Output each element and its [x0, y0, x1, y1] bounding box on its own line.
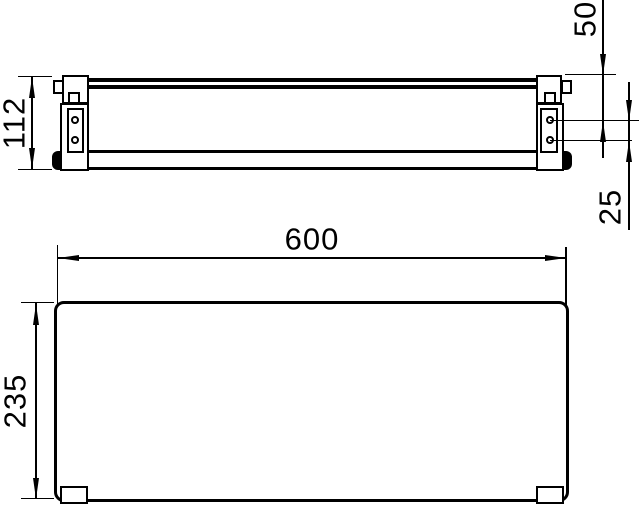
- dim235-arrow-down: [33, 478, 39, 499]
- dim50-label: 50: [570, 1, 601, 37]
- dim235-label: 235: [0, 374, 31, 429]
- plan-left-foot: [60, 486, 88, 505]
- rail-top-line: [88, 78, 536, 82]
- dim600-arrow-left: [58, 255, 79, 261]
- left-clip-notch: [68, 92, 80, 104]
- dim235-line: [35, 303, 36, 499]
- right-wall-tab: [561, 80, 572, 94]
- shelf-lower-rim: [88, 167, 536, 170]
- shelf-plate-outline: [54, 301, 569, 502]
- dim25-arrow-down: [626, 100, 632, 121]
- left-upper-screw-hole: [71, 116, 79, 124]
- right-mounting-plate: [540, 108, 558, 153]
- left-mounting-plate: [67, 108, 85, 153]
- dim600-arrow-right: [545, 255, 566, 261]
- plan-right-foot: [536, 486, 564, 505]
- dim600-line: [58, 257, 566, 258]
- dim50-arrow-down: [600, 54, 606, 75]
- right-clip-notch: [544, 92, 556, 104]
- dim600-label: 600: [285, 224, 340, 255]
- dim112-label: 112: [0, 97, 30, 149]
- dim112-ext-bottom: [18, 169, 52, 170]
- shelf-bottom-edge: [88, 150, 536, 153]
- dim50-arrow-up: [600, 121, 606, 142]
- technical-drawing-canvas: 112 50 25 600: [0, 0, 640, 506]
- dim235-arrow-up: [33, 304, 39, 325]
- dim50-ext-bracket-top: [565, 74, 616, 75]
- dim25-label: 25: [595, 189, 626, 225]
- dim25-arrow-up: [626, 141, 632, 162]
- rail-bottom-line: [88, 85, 536, 89]
- dim112-ext-top: [18, 76, 52, 77]
- dim25-ext-lower-hole: [550, 140, 632, 141]
- dim112-arrow-up: [29, 77, 35, 98]
- dim112-arrow-down: [29, 148, 35, 169]
- left-lower-screw-hole: [71, 136, 79, 144]
